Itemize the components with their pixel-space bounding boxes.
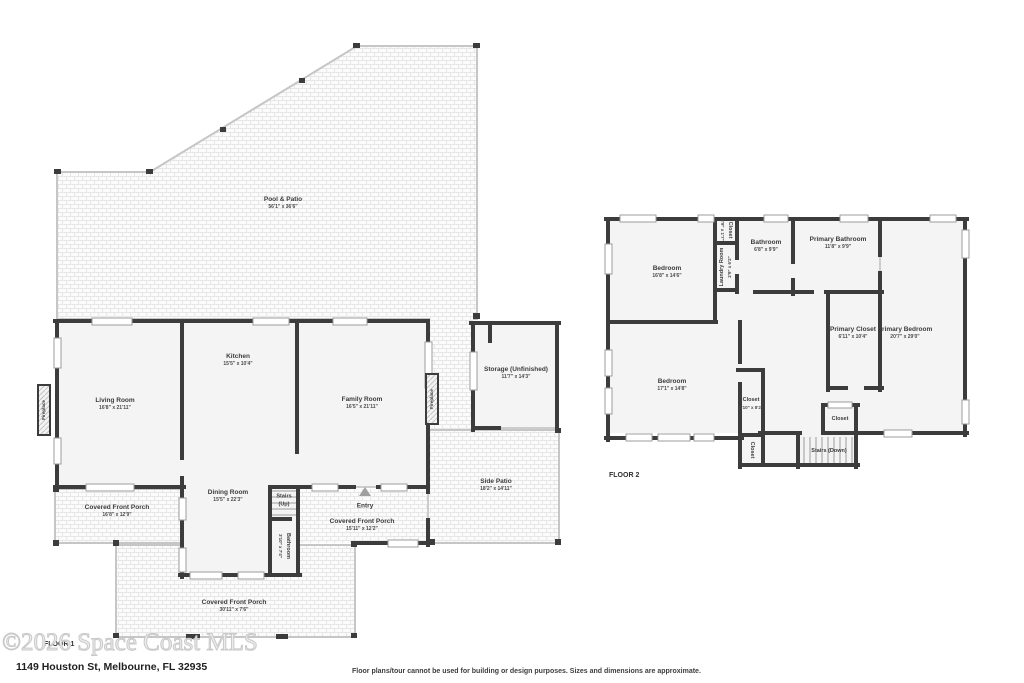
floorplan-drawing [0, 0, 1024, 683]
room-label-laundry: Laundry Room 2'9" x 6'2" [719, 248, 733, 287]
room-label-porch-entry: Covered Front Porch 15'11" x 12'2" [330, 517, 395, 533]
room-label-primary-bathroom: Primary Bathroom 11'8" x 9'9" [810, 235, 867, 251]
label-fireplace-living: Fireplace [41, 400, 47, 420]
label-fireplace-family: Fireplace [429, 389, 435, 409]
room-label-pool-patio: Pool & Patio 56'1" x 36'6" [264, 195, 302, 211]
floor1-plan [38, 43, 561, 639]
room-label-storage: Storage (Unfinished) 11'7" x 14'3" [484, 365, 548, 381]
room-label-bedroom-1: Bedroom 16'8" x 14'6" [652, 264, 681, 280]
disclaimer-text: Floor plans/tour cannot be used for buil… [352, 668, 701, 675]
room-label-porch-bottom: Covered Front Porch 30'11" x 7'6" [202, 598, 267, 614]
room-label-entry: Entry [357, 501, 374, 510]
pool-patio-area [57, 46, 477, 319]
room-label-closet-top: Closet 2'9" x 1'7" [719, 219, 733, 240]
watermark: ©2026 Space Coast MLS [2, 629, 258, 657]
room-label-bathroom-f2: Bathroom 6'8" x 9'9" [751, 238, 782, 254]
room-label-bedroom-2: Bedroom 17'1" x 14'8" [657, 377, 686, 393]
room-label-porch-left: Covered Front Porch 16'8" x 12'9" [85, 503, 150, 519]
property-address: 1149 Houston St, Melbourne, FL 32935 [16, 661, 207, 673]
room-label-closet-low: Closet [747, 442, 755, 459]
room-label-dining-room: Dining Room 15'5" x 22'3" [208, 488, 248, 504]
room-label-stairs-down: Stairs (Down) [811, 448, 846, 456]
floor2-tag: FLOOR 2 [609, 472, 639, 479]
room-label-kitchen: Kitchen 15'5" x 10'4" [223, 352, 252, 368]
room-label-living-room: Living Room 16'8" x 21'11" [95, 396, 134, 412]
room-label-stairs-up: Stairs (Up) [276, 493, 291, 508]
room-label-primary-closet: Primary Closet 6'11" x 10'4" [830, 325, 876, 341]
room-label-closet-mid: Closet 2'10" x 8'2" [739, 397, 763, 411]
room-label-bathroom-f1: Bathroom 3'10" x 7'4" [277, 533, 291, 559]
room-label-side-patio: Side Patio 18'2" x 14'11" [480, 477, 512, 493]
room-label-primary-bedroom: Primary Bedroom 20'7" x 29'0" [878, 325, 933, 341]
room-label-family-room: Family Room 16'5" x 21'11" [342, 395, 383, 411]
floorplan-page: { "f1": { "label": "FLOOR 1", "pool": {"… [0, 0, 1024, 683]
room-label-closet-stairs: Closet [832, 416, 849, 424]
